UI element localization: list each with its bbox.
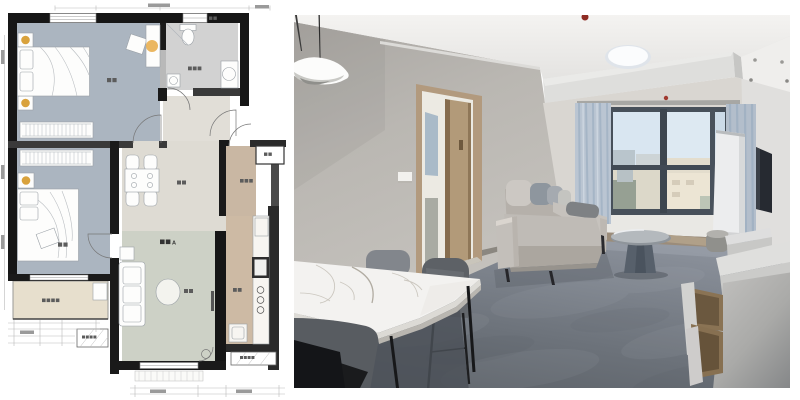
svg-text:A: A (172, 240, 176, 246)
